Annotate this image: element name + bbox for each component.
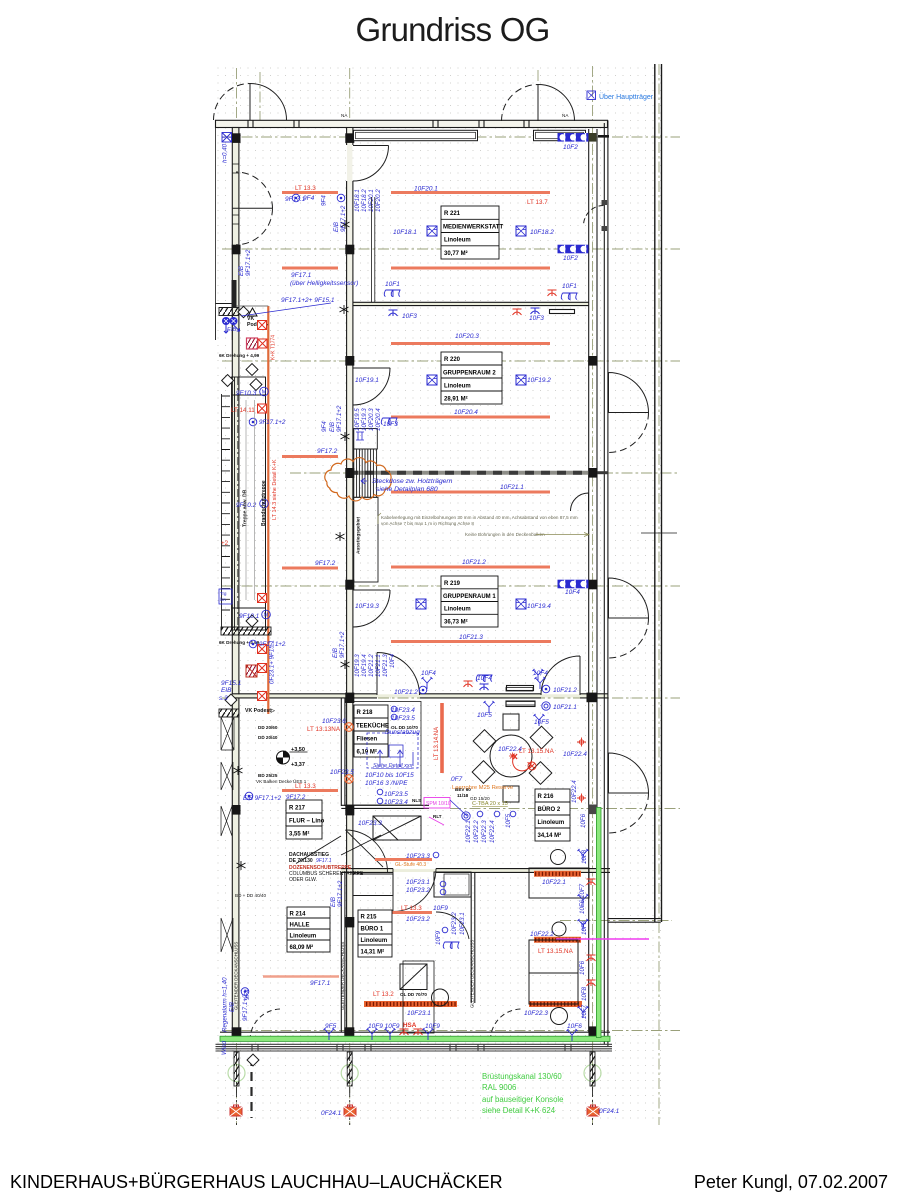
svg-text:R 221: R 221 <box>444 211 461 217</box>
svg-text:siehe Detailplan 680: siehe Detailplan 680 <box>376 486 438 493</box>
svg-text:EIB: EIB <box>329 422 336 432</box>
svg-text:9F17.2: 9F17.2 <box>315 560 336 567</box>
svg-text:28,91 M²: 28,91 M² <box>444 396 468 403</box>
svg-text:10F23.4: 10F23.4 <box>384 799 408 806</box>
svg-text:EIB: EIB <box>238 266 245 276</box>
svg-text:0F7: 0F7 <box>451 776 463 783</box>
svg-text:9F17.1+2: 9F17.1+2 <box>259 419 286 426</box>
svg-text:Regenalarm h=1,40: Regenalarm h=1,40 <box>222 977 229 1032</box>
svg-text:10F9: 10F9 <box>435 930 442 945</box>
svg-text:10F9 10F9: 10F9 10F9 <box>368 1023 400 1030</box>
svg-text:10F20.3: 10F20.3 <box>455 333 479 340</box>
svg-text:10F5: 10F5 <box>534 719 549 726</box>
svg-text:10F21.1: 10F21.1 <box>375 654 382 677</box>
svg-text:LT 13.7: LT 13.7 <box>527 199 548 206</box>
svg-text:10F23.5: 10F23.5 <box>330 769 354 776</box>
svg-text:10F20.4: 10F20.4 <box>454 409 478 416</box>
svg-text:VK Podest▷: VK Podest▷ <box>245 708 276 714</box>
svg-text:siehe Detail K+K 624: siehe Detail K+K 624 <box>482 1106 556 1115</box>
svg-text:10F19.2: 10F19.2 <box>527 377 551 384</box>
svg-text:EIB: EIB <box>229 1002 236 1012</box>
svg-text:BÜRO 1: BÜRO 1 <box>361 926 384 933</box>
svg-text:Trg: Trg <box>220 591 227 596</box>
svg-text:10F6: 10F6 <box>579 960 586 975</box>
svg-text:EIB: EIB <box>330 897 337 907</box>
svg-text:+3,50: +3,50 <box>291 747 305 753</box>
svg-text:DE 70/130: DE 70/130 <box>289 858 313 864</box>
svg-text:10F7: 10F7 <box>581 1004 588 1019</box>
svg-text:10F22.1: 10F22.1 <box>542 879 566 886</box>
svg-text:10F23.2: 10F23.2 <box>406 887 430 894</box>
svg-text:GRUPPENRAUM 1: GRUPPENRAUM 1 <box>443 594 496 600</box>
svg-text:NLS: NLS <box>412 798 421 803</box>
svg-text:10F23.4: 10F23.4 <box>391 707 415 714</box>
svg-text:10F22.3: 10F22.3 <box>524 1010 548 1017</box>
svg-text:9F17.1+2: 9F17.1+2 <box>340 205 347 232</box>
svg-text:Über Hauptträger: Über Hauptträger <box>599 93 654 101</box>
svg-text:Linoleum: Linoleum <box>444 384 471 390</box>
svg-text:34,14 M²: 34,14 M² <box>538 832 562 839</box>
svg-text:R 219: R 219 <box>444 581 461 587</box>
svg-text:R 220: R 220 <box>444 357 461 363</box>
svg-text:10F19.5: 10F19.5 <box>354 408 361 431</box>
svg-text:auf bauseitiger Konsole: auf bauseitiger Konsole <box>482 1095 564 1104</box>
svg-text:10F22.2: 10F22.2 <box>473 820 480 843</box>
svg-text:EIB: EIB <box>221 687 232 694</box>
svg-text:Linoleum: Linoleum <box>290 934 317 940</box>
svg-text:10F4: 10F4 <box>421 670 436 677</box>
svg-text:9F4: 9F4 <box>303 195 315 202</box>
svg-text:9F17.1+2: 9F17.1+2 <box>337 880 344 907</box>
svg-text:10F19.3: 10F19.3 <box>354 654 361 677</box>
svg-text:EIB: EIB <box>333 222 340 232</box>
svg-text:10F4: 10F4 <box>533 670 548 677</box>
svg-text:3,55 M²: 3,55 M² <box>289 831 309 838</box>
svg-text:Dunstabzug: Dunstabzug <box>385 729 420 736</box>
svg-text:10F5: 10F5 <box>477 712 492 719</box>
svg-text:9F17.1: 9F17.1 <box>310 980 331 987</box>
svg-text:9F17.2: 9F17.2 <box>286 794 306 801</box>
svg-text:RLT: RLT <box>433 814 442 819</box>
svg-text:BÜRO 2: BÜRO 2 <box>538 806 561 813</box>
svg-text:10F21.2: 10F21.2 <box>394 689 418 696</box>
svg-text:LT 13.3: LT 13.3 <box>401 905 422 912</box>
svg-text:Linoleum: Linoleum <box>444 607 471 613</box>
svg-text:10F21.2: 10F21.2 <box>553 687 577 694</box>
svg-text:MEDIENWERKSTATT: MEDIENWERKSTATT <box>443 225 503 231</box>
svg-text:NA: NA <box>562 113 569 118</box>
svg-text:HALLE: HALLE <box>290 923 310 929</box>
svg-text:9F17.1: 9F17.1 <box>291 272 312 279</box>
svg-text:10F23.3: 10F23.3 <box>358 820 382 827</box>
svg-text:+2: +2 <box>221 540 229 547</box>
svg-text:10F18.2: 10F18.2 <box>361 189 368 212</box>
svg-text:36,73 M²: 36,73 M² <box>444 619 468 626</box>
svg-text:ODER GLW.: ODER GLW. <box>289 877 317 883</box>
svg-text:(über Helligkeitssensor): (über Helligkeitssensor) <box>290 280 358 287</box>
svg-text:10F6: 10F6 <box>567 1023 582 1030</box>
svg-text:DD 20/40: DD 20/40 <box>258 735 278 740</box>
svg-text:10F19.3: 10F19.3 <box>361 408 368 431</box>
svg-text:10F21.2: 10F21.2 <box>368 654 375 677</box>
svg-text:R 216: R 216 <box>538 794 555 800</box>
svg-text:10F21.3: 10F21.3 <box>459 634 483 641</box>
svg-text:C-TBA 20 x 15: C-TBA 20 x 15 <box>472 801 508 807</box>
svg-text:R 217: R 217 <box>289 806 306 812</box>
svg-text:10F23.6: 10F23.6 <box>322 718 346 725</box>
svg-text:K+K T1774: K+K T1774 <box>271 335 277 360</box>
svg-text:Linoleum: Linoleum <box>444 238 471 244</box>
svg-text:10F9: 10F9 <box>425 1023 440 1030</box>
svg-text:Siehe Detail xxx: Siehe Detail xxx <box>373 763 413 769</box>
svg-text:10F22.1: 10F22.1 <box>465 820 472 843</box>
svg-text:10F22.4: 10F22.4 <box>489 820 496 843</box>
svg-text:OL DD 70/70: OL DD 70/70 <box>400 992 427 997</box>
svg-text:10F19.4: 10F19.4 <box>527 603 551 610</box>
svg-text:10F16 3 /N/PE: 10F16 3 /N/PE <box>365 780 408 787</box>
svg-text:10F23.1: 10F23.1 <box>406 879 430 886</box>
svg-text:10F21.3: 10F21.3 <box>382 654 389 677</box>
svg-text:Brüstungskanal 130/60: Brüstungskanal 130/60 <box>482 1072 562 1081</box>
svg-text:h=0,40: h=0,40 <box>222 143 229 163</box>
svg-text:R 218: R 218 <box>357 710 374 716</box>
svg-text:Ausstiegsgebiet: Ausstiegsgebiet <box>356 517 362 554</box>
svg-text:RAL 9006: RAL 9006 <box>482 1083 516 1092</box>
svg-text:BD + DD 40/40: BD + DD 40/40 <box>235 893 266 898</box>
svg-text:10F20.3: 10F20.3 <box>368 408 375 431</box>
svg-text:9F17.1+2: 9F17.1+2 <box>339 631 346 658</box>
svg-text:10F23.5: 10F23.5 <box>384 791 408 798</box>
svg-text:Keine Bohrungen in den Deckenb: Keine Bohrungen in den Deckenbalken <box>465 532 545 537</box>
svg-text:9F17.1+2: 9F17.1+2 <box>259 641 286 648</box>
svg-text:68,09 M²: 68,09 M² <box>290 944 314 951</box>
svg-text:EIB: EIB <box>332 648 339 658</box>
svg-text:14,31 M²: 14,31 M² <box>361 949 385 956</box>
svg-text:s.3: s.3 <box>219 695 228 702</box>
svg-text:GLEITENDER DECKANSCHLUSS: GLEITENDER DECKANSCHLUSS <box>470 940 475 1008</box>
svg-text:9F5: 9F5 <box>325 1023 337 1030</box>
svg-text:10F8: 10F8 <box>581 920 588 935</box>
svg-text:9F17.1+2+ 9F15.1: 9F17.1+2+ 9F15.1 <box>281 297 335 304</box>
svg-text:10F4: 10F4 <box>389 653 396 668</box>
svg-text:10F19.3: 10F19.3 <box>355 603 379 610</box>
svg-text:9F17.1+2: 9F17.1+2 <box>245 249 252 276</box>
svg-text:10F2: 10F2 <box>563 255 578 262</box>
svg-text:SPM 10/10: SPM 10/10 <box>426 801 451 807</box>
svg-text:9F4: 9F4 <box>321 421 328 432</box>
svg-text:10F6: 10F6 <box>579 899 586 914</box>
svg-text:DD 20/60: DD 20/60 <box>258 725 278 730</box>
svg-text:10F23.2: 10F23.2 <box>406 916 430 923</box>
svg-text:10F3: 10F3 <box>383 421 398 428</box>
svg-text:Linoleum: Linoleum <box>361 938 388 944</box>
svg-text:9F17.2: 9F17.2 <box>317 448 338 455</box>
svg-text:10F18.1: 10F18.1 <box>393 229 417 236</box>
svg-text:30,77 M²: 30,77 M² <box>444 250 468 257</box>
svg-text:Linoleum: Linoleum <box>538 820 565 826</box>
svg-text:+3,37: +3,37 <box>291 762 305 768</box>
svg-text:GL-Stufe 40.3: GL-Stufe 40.3 <box>395 862 426 868</box>
svg-text:LT 13.15.NA: LT 13.15.NA <box>538 948 574 955</box>
svg-text:10F22.4: 10F22.4 <box>563 751 587 758</box>
svg-text:10F1: 10F1 <box>562 283 577 290</box>
svg-text:10F22.4: 10F22.4 <box>571 780 578 803</box>
svg-text:GLEITENDER DECKANSCHLUSS: GLEITENDER DECKANSCHLUSS <box>340 942 345 1010</box>
svg-text:10F21.2: 10F21.2 <box>462 559 486 566</box>
svg-text:6K Drehung + 4,99: 6K Drehung + 4,99 <box>219 353 260 358</box>
svg-text:LT 13.3: LT 13.3 <box>295 783 316 790</box>
svg-text:Wind: Wind <box>221 1040 228 1055</box>
svg-text:9F10.1: 9F10.1 <box>239 613 260 620</box>
svg-text:9F4: 9F4 <box>321 195 328 206</box>
svg-text:von Achse 7 bis max 1 m in Ric: von Achse 7 bis max 1 m in Richtung Achs… <box>381 521 474 526</box>
svg-text:10F20.1: 10F20.1 <box>414 186 438 193</box>
svg-text:10F18.1: 10F18.1 <box>354 189 361 212</box>
svg-text:10F8: 10F8 <box>581 849 588 864</box>
svg-text:10F3: 10F3 <box>402 313 417 320</box>
svg-text:9F10.3: 9F10.3 <box>236 390 257 397</box>
svg-text:Steckdose zw. Holzträgern: Steckdose zw. Holzträgern <box>372 478 453 485</box>
svg-text:10F23.5: 10F23.5 <box>391 715 415 722</box>
svg-text:10F4: 10F4 <box>477 675 492 682</box>
svg-text:EIB 9F17.1+2: EIB 9F17.1+2 <box>243 795 282 802</box>
svg-text:10F23.1: 10F23.1 <box>407 1010 431 1017</box>
svg-text:lon: lon <box>220 597 226 602</box>
svg-text:LT 13.2: LT 13.2 <box>373 991 394 998</box>
svg-text:0F24.1: 0F24.1 <box>599 1108 620 1115</box>
svg-text:10F19.4: 10F19.4 <box>361 654 368 677</box>
svg-text:0F24.1: 0F24.1 <box>321 1110 342 1117</box>
svg-text:10F23.1: 10F23.1 <box>459 912 466 935</box>
svg-text:10F20.4: 10F20.4 <box>375 408 382 431</box>
svg-text:10F10 bis 10F15: 10F10 bis 10F15 <box>365 772 414 779</box>
svg-text:10F2: 10F2 <box>563 144 578 151</box>
svg-text:BD 25/25: BD 25/25 <box>258 773 278 778</box>
svg-text:NA: NA <box>341 113 348 118</box>
svg-text:LT 14.3 siehe Detail K+K: LT 14.3 siehe Detail K+K <box>272 459 278 520</box>
svg-text:10F4: 10F4 <box>565 589 580 596</box>
svg-text:R 215: R 215 <box>361 915 378 921</box>
svg-text:10F19.1: 10F19.1 <box>355 377 379 384</box>
svg-text:9F15.1: 9F15.1 <box>221 680 242 687</box>
svg-text:10F23.3: 10F23.3 <box>406 853 430 860</box>
svg-text:10F22.2: 10F22.2 <box>530 931 554 938</box>
svg-text:10F7: 10F7 <box>579 883 586 898</box>
svg-text:10F3: 10F3 <box>529 315 544 322</box>
svg-text:10F5: 10F5 <box>505 813 512 828</box>
svg-text:Leerrohre M25 Reserve: Leerrohre M25 Reserve <box>452 785 513 791</box>
svg-text:FLUR – Lino: FLUR – Lino <box>289 819 325 825</box>
svg-text:10F21.1: 10F21.1 <box>500 484 524 491</box>
svg-text:9F17.1: 9F17.1 <box>316 858 332 864</box>
svg-text:10F22.3: 10F22.3 <box>481 820 488 843</box>
svg-text:HSA: HSA <box>403 1022 417 1029</box>
svg-text:LT 13.15.NA: LT 13.15.NA <box>519 748 555 755</box>
svg-text:10F6: 10F6 <box>580 813 587 828</box>
svg-text:Treppe abw. DB: Treppe abw. DB <box>243 489 249 527</box>
svg-text:LT 13.13NA: LT 13.13NA <box>307 726 341 733</box>
svg-text:10F8: 10F8 <box>581 986 588 1001</box>
svg-text:10F9: 10F9 <box>433 905 448 912</box>
svg-text:Brandschutztreppe: Brandschutztreppe <box>261 480 267 526</box>
svg-text:10F1: 10F1 <box>385 281 400 288</box>
svg-text:EIB: EIB <box>227 327 236 333</box>
svg-text:11/18: 11/18 <box>457 793 469 798</box>
svg-text:Kabelverlegung mit Einzelbohru: Kabelverlegung mit Einzelbohrungen 30 mm… <box>381 515 578 520</box>
svg-text:GRUPPENRAUM 2: GRUPPENRAUM 2 <box>443 371 496 377</box>
svg-text:GLEITENDER DECKANSCHLUSS: GLEITENDER DECKANSCHLUSS <box>233 942 238 1010</box>
svg-text:LT 13.3: LT 13.3 <box>295 185 316 192</box>
svg-text:R 214: R 214 <box>290 912 307 918</box>
svg-text:LT 13.14.NA: LT 13.14.NA <box>434 727 440 760</box>
svg-text:10F23.2: 10F23.2 <box>451 912 458 935</box>
svg-text:LT 14.11: LT 14.11 <box>231 407 255 414</box>
svg-text:10F18.2: 10F18.2 <box>530 229 554 236</box>
svg-text:10F21.1: 10F21.1 <box>553 704 577 711</box>
svg-text:9F17.1+2: 9F17.1+2 <box>336 405 343 432</box>
svg-text:10F20.2: 10F20.2 <box>375 189 382 212</box>
svg-text:9F17.1+2: 9F17.1+2 <box>242 994 249 1021</box>
